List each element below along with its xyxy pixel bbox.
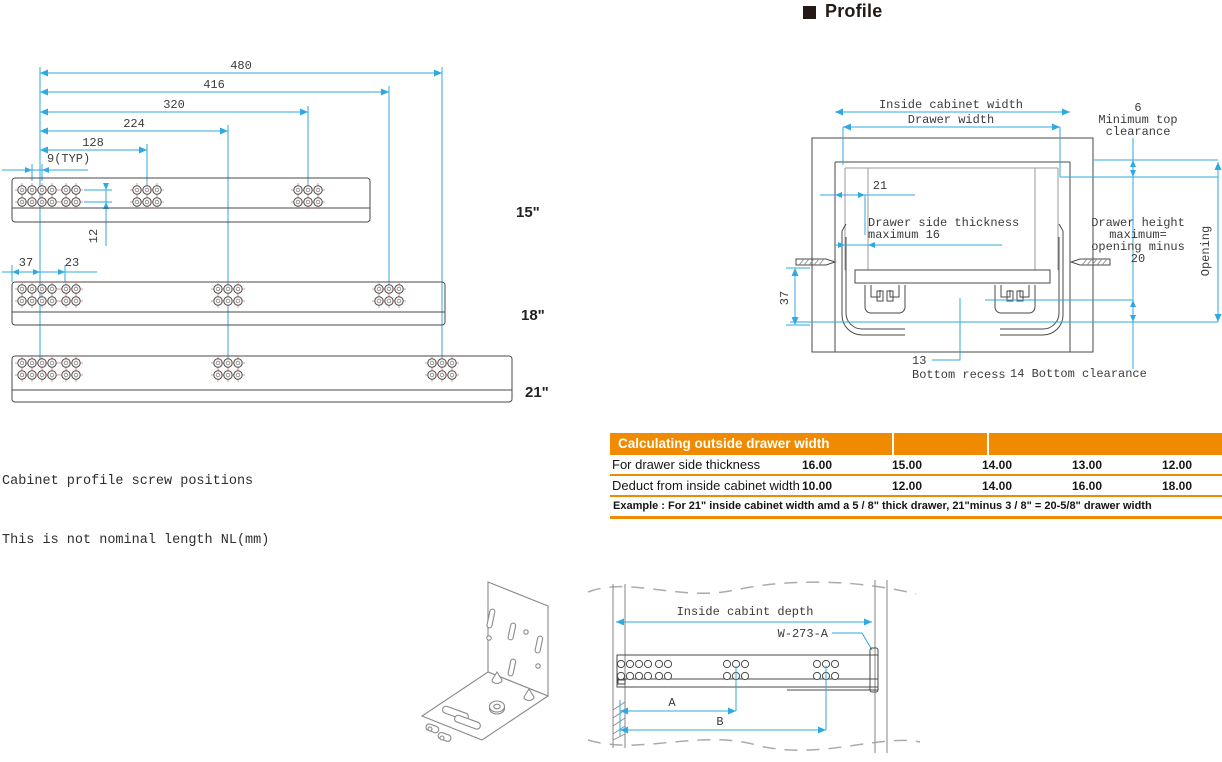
dim-9typ-label: 9(TYP)	[47, 152, 90, 166]
inside-cabinet-depth-diagram: Inside cabint depth W-273-A A B	[560, 570, 1222, 761]
top-clearance-label-2: clearance	[1106, 125, 1171, 139]
catalog-page: { "heading": { "title": "Profile" }, "sc…	[0, 0, 1222, 761]
drawer-width-table: Calculating outside drawer width For dra…	[610, 433, 1222, 519]
dim-a-label: A	[668, 696, 676, 710]
screw-diagram-caption: Cabinet profile screw positions This is …	[2, 433, 269, 570]
screw-right-icon	[1071, 259, 1110, 265]
caption-line-1: Cabinet profile screw positions	[2, 472, 269, 492]
cell: 14.00	[952, 458, 1042, 472]
cabinet-screw-positions-diagram: 480 416 320 224 128 9(TYP) 12	[0, 40, 560, 435]
cell: 16.00	[1042, 479, 1132, 493]
row-label: For drawer side thickness	[610, 457, 772, 472]
bracket-body	[422, 582, 548, 742]
dim-320-label: 320	[163, 98, 185, 112]
cell: 14.00	[952, 479, 1042, 493]
bottom-recess-label: Bottom recess	[912, 368, 1006, 382]
slide-rail-side-view	[613, 648, 878, 740]
bottom-clearance-label: 14 Bottom clearance	[1010, 367, 1147, 381]
rail-15-label: 15"	[516, 204, 540, 221]
rail-15: 15"	[12, 178, 540, 222]
dim-12-label: 12	[87, 229, 101, 243]
profile-section-heading: Profile	[803, 1, 882, 22]
dim-416-label: 416	[203, 78, 225, 92]
header-separator	[987, 433, 989, 455]
dim-21-label: 21	[873, 179, 887, 193]
table-row: Deduct from inside cabinet width 10.00 1…	[610, 476, 1222, 497]
screw-left-icon	[796, 259, 835, 265]
cell: 16.00	[772, 458, 862, 472]
screw-holes-15	[15, 183, 325, 209]
depth-dimensions: Inside cabint depth W-273-A	[616, 605, 872, 650]
screw-holes-21	[15, 356, 459, 382]
table-example-note: Example : For 21" inside cabinet width a…	[610, 497, 1222, 519]
cell: 18.00	[1132, 479, 1222, 493]
table-row: For drawer side thickness 16.00 15.00 14…	[610, 455, 1222, 476]
slide-assembly-right	[995, 285, 1035, 313]
cell: 12.00	[1132, 458, 1222, 472]
profile-dim-37-label: 37	[780, 291, 792, 305]
row-label: Deduct from inside cabinet width	[610, 478, 772, 493]
rail-21-label: 21"	[525, 384, 549, 401]
table-header-title: Calculating outside drawer width	[618, 436, 830, 451]
cell: 12.00	[862, 479, 952, 493]
header-separator	[892, 433, 894, 455]
profile-heading-text: Profile	[825, 1, 882, 22]
inside-cabinet-depth-label: Inside cabint depth	[677, 605, 814, 619]
side-profile-right	[1000, 224, 1063, 335]
drawer-height-label-4: 20	[1131, 252, 1145, 266]
inside-cabinet-width-label: Inside cabinet width	[879, 98, 1023, 112]
length-dimensions: 480 416 320 224 128	[40, 59, 442, 363]
slide-assembly-left	[865, 285, 905, 313]
cell: 15.00	[862, 458, 952, 472]
screw-holes-18	[15, 282, 406, 308]
part-number-label: W-273-A	[778, 627, 829, 641]
dim-9typ: 9(TYP)	[2, 152, 90, 181]
dim-224-label: 224	[123, 117, 145, 131]
dim-37-23: 37 23	[2, 256, 97, 282]
dim-12: 12	[84, 183, 112, 246]
cell: 13.00	[1042, 458, 1132, 472]
rail-21: 21"	[12, 356, 549, 402]
dim-23-label: 23	[65, 256, 79, 270]
dim-480-label: 480	[230, 59, 252, 73]
bottom-recess-value: 13	[912, 354, 926, 368]
opening-label: Opening	[1199, 226, 1213, 276]
drawer-width-label: Drawer width	[908, 113, 994, 127]
square-bullet-icon	[803, 6, 816, 19]
table-header: Calculating outside drawer width	[610, 433, 1222, 455]
dim-37-label: 37	[19, 256, 33, 270]
side-thickness-label-2: maximum 16	[868, 228, 940, 242]
dim-128-label: 128	[82, 136, 104, 150]
caption-line-2: This is not nominal length NL(mm)	[2, 531, 269, 551]
cell: 10.00	[772, 479, 862, 493]
dim-b-label: B	[716, 715, 723, 729]
rail-holes	[617, 660, 838, 679]
rail-18: 18"	[12, 282, 545, 325]
rail-18-label: 18"	[521, 307, 545, 324]
profile-cross-section-diagram: Inside cabinet width Drawer width 21 Dra…	[780, 85, 1222, 400]
